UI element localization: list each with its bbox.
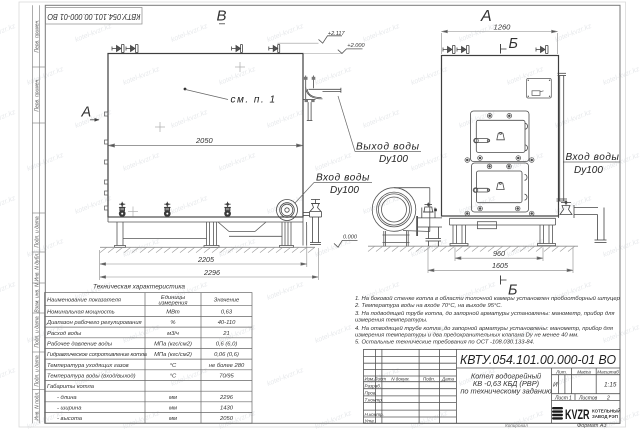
svg-text:40-110: 40-110	[218, 320, 236, 326]
svg-text:измерения: измерения	[158, 301, 187, 307]
svg-text:А: А	[81, 104, 92, 120]
svg-text:Н.контр.: Н.контр.	[365, 412, 384, 417]
svg-text:kotel-kvzr.kz: kotel-kvzr.kz	[170, 109, 209, 130]
svg-text:КВТУ.054.101.00.000-01 ВО: КВТУ.054.101.00.000-01 ВО	[47, 12, 140, 22]
svg-text:kotel-kvzr.kz: kotel-kvzr.kz	[122, 238, 161, 259]
svg-text:5. Остальные технические треб: 5. Остальные технические требования по О…	[355, 340, 535, 346]
svg-text:Температура уходящих газов: Температура уходящих газов	[47, 363, 129, 369]
svg-text:МПа (кгс/см2): МПа (кгс/см2)	[154, 341, 192, 347]
svg-text:Вход воды: Вход воды	[316, 173, 370, 184]
svg-text:0,6 (6,0): 0,6 (6,0)	[216, 341, 238, 347]
svg-text:2296: 2296	[203, 268, 220, 277]
svg-text:Dy100: Dy100	[330, 185, 359, 196]
svg-text:0.000: 0.000	[343, 235, 358, 241]
svg-text:Копировал: Копировал	[505, 423, 528, 428]
svg-text:1430: 1430	[220, 406, 234, 412]
svg-text:0,63: 0,63	[221, 309, 233, 315]
svg-text:Перв. примен.: Перв. примен.	[34, 78, 40, 111]
svg-text:Дата: Дата	[441, 376, 455, 381]
svg-text:kotel-kvzr.kz: kotel-kvzr.kz	[458, 109, 497, 130]
svg-text:Значение: Значение	[214, 298, 240, 304]
svg-text:Разраб.: Разраб.	[365, 383, 382, 388]
svg-text:kotel-kvzr.kz: kotel-kvzr.kz	[218, 238, 257, 259]
svg-text:по техническому заданию: по техническому заданию	[460, 386, 552, 395]
svg-text:не более 280: не более 280	[209, 363, 245, 369]
svg-text:+2.000: +2.000	[347, 43, 365, 49]
svg-text:21: 21	[222, 331, 229, 337]
svg-text:kotel-kvzr.kz: kotel-kvzr.kz	[74, 23, 113, 44]
svg-text:- длина: - длина	[57, 395, 77, 401]
svg-text:kotel-kvzr.kz: kotel-kvzr.kz	[458, 195, 497, 216]
svg-text:0,06 (0,6): 0,06 (0,6)	[214, 352, 239, 358]
svg-text:Масса: Масса	[577, 370, 591, 375]
svg-text:kotel-kvzr.kz: kotel-kvzr.kz	[506, 238, 545, 259]
svg-text:kotel-kvzr.kz: kotel-kvzr.kz	[410, 66, 449, 87]
svg-text:kotel-kvzr.kz: kotel-kvzr.kz	[266, 109, 305, 130]
svg-text:kotel-kvzr.kz: kotel-kvzr.kz	[410, 152, 449, 173]
svg-text:Подп.: Подп.	[423, 376, 435, 381]
svg-text:kotel-kvzr.kz: kotel-kvzr.kz	[314, 66, 353, 87]
svg-text:см. п. 1: см. п. 1	[231, 94, 277, 105]
svg-text:kotel-kvzr.kz: kotel-kvzr.kz	[314, 238, 353, 259]
svg-text:МПа (кгс/см2): МПа (кгс/см2)	[154, 352, 192, 358]
svg-text:kotel-kvzr.kz: kotel-kvzr.kz	[314, 324, 353, 345]
svg-text:4. На отводящей трубе котла ,: 4. На отводящей трубе котла ,до запорной…	[355, 325, 613, 332]
svg-text:Перв. примен.: Перв. примен.	[34, 19, 40, 52]
svg-text:Температура воды (вход/выход): Температура воды (вход/выход)	[47, 374, 136, 380]
svg-text:измерения температуры и два пр: измерения температуры и два предохраните…	[355, 333, 579, 339]
svg-text:kotel-kvzr.kz: kotel-kvzr.kz	[362, 23, 401, 44]
svg-text:- высота: - высота	[57, 416, 83, 422]
svg-text:Взам. инв. N: Взам. инв. N	[34, 283, 40, 313]
svg-text:kotel-kvzr.kz: kotel-kvzr.kz	[0, 109, 17, 130]
svg-text:Лист: Лист	[554, 395, 568, 401]
svg-text:Б: Б	[509, 36, 518, 52]
svg-text:kotel-kvzr.kz: kotel-kvzr.kz	[362, 109, 401, 130]
svg-text:1: 1	[569, 395, 572, 401]
svg-text:Dy100: Dy100	[379, 154, 408, 165]
svg-text:мм: мм	[169, 416, 177, 422]
svg-text:2: 2	[606, 395, 610, 401]
svg-text:Лит.: Лит.	[555, 370, 567, 375]
svg-text:Подп. и дата: Подп. и дата	[34, 216, 40, 248]
svg-text:2050: 2050	[219, 416, 234, 422]
svg-text:Т.контр.: Т.контр.	[365, 397, 384, 402]
svg-text:Листов: Листов	[578, 395, 598, 401]
svg-text:960: 960	[493, 249, 505, 258]
svg-text:- ширина: - ширина	[57, 406, 82, 412]
svg-text:2205: 2205	[197, 255, 215, 264]
svg-text:kotel-kvzr.kz: kotel-kvzr.kz	[122, 152, 161, 173]
svg-text:мм: мм	[169, 395, 177, 401]
svg-text:В: В	[217, 8, 227, 25]
svg-text:Расход воды: Расход воды	[47, 331, 82, 337]
svg-text:Выход воды: Выход воды	[356, 142, 420, 153]
svg-text:kotel-kvzr.kz: kotel-kvzr.kz	[458, 23, 497, 44]
svg-text:kotel-kvzr.kz: kotel-kvzr.kz	[170, 23, 209, 44]
svg-text:Инв. N подл.: Инв. N подл.	[34, 391, 40, 420]
svg-text:kotel-kvzr.kz: kotel-kvzr.kz	[554, 23, 593, 44]
svg-text:N докум.: N докум.	[391, 376, 410, 381]
svg-text:70/95: 70/95	[219, 374, 234, 380]
svg-text:Подп. и дата: Подп. и дата	[34, 355, 40, 387]
svg-text:Рабочее давление воды: Рабочее давление воды	[47, 341, 113, 347]
svg-text:kotel-kvzr.kz: kotel-kvzr.kz	[0, 195, 17, 216]
svg-text:Пров.: Пров.	[365, 391, 377, 396]
svg-text:Номинальная мощность: Номинальная мощность	[47, 309, 115, 315]
svg-text:kotel-kvzr.kz: kotel-kvzr.kz	[122, 66, 161, 87]
svg-text:1260: 1260	[494, 22, 512, 31]
svg-text:°С: °С	[170, 363, 177, 369]
svg-text:+2.117: +2.117	[328, 31, 346, 37]
svg-text:Наименование показателя: Наименование показателя	[47, 298, 121, 304]
svg-text:2296: 2296	[219, 395, 234, 401]
svg-text:%: %	[170, 320, 175, 326]
svg-text:kotel-kvzr.kz: kotel-kvzr.kz	[266, 281, 305, 302]
svg-text:kotel-kvzr.kz: kotel-kvzr.kz	[0, 23, 17, 44]
svg-text:Техническая характеристика: Техническая характеристика	[93, 284, 185, 291]
svg-text:1605: 1605	[492, 261, 509, 270]
svg-text:Гидравлическое сопротивление к: Гидравлическое сопротивление котла	[47, 352, 148, 358]
svg-text:kotel-kvzr.kz: kotel-kvzr.kz	[0, 367, 17, 388]
svg-text:А: А	[480, 8, 492, 25]
svg-text:1:15: 1:15	[604, 382, 617, 389]
svg-text:КВТУ.054.101.00.000-01 ВО: КВТУ.054.101.00.000-01 ВО	[460, 353, 616, 367]
svg-text:kotel-kvzr.kz: kotel-kvzr.kz	[74, 195, 113, 216]
svg-text:2. Температура воды на входе: 2. Температура воды на входе 70°С, на вы…	[354, 303, 502, 309]
svg-text:1. На боковой стенке котла в: 1. На боковой стенке котла в области топ…	[355, 295, 621, 302]
svg-text:м3/ч: м3/ч	[167, 331, 179, 337]
svg-text:kotel-kvzr.kz: kotel-kvzr.kz	[218, 66, 257, 87]
svg-text:kotel-kvzr.kz: kotel-kvzr.kz	[314, 152, 353, 173]
svg-text:Вход воды: Вход воды	[566, 152, 620, 163]
svg-text:Формат А3: Формат А3	[577, 423, 607, 429]
svg-text:2050: 2050	[195, 136, 214, 145]
svg-text:kotel-kvzr.kz: kotel-kvzr.kz	[602, 238, 641, 259]
svg-text:Изм.Лист: Изм.Лист	[365, 376, 387, 381]
svg-text:Габариты котла: Габариты котла	[47, 384, 95, 390]
svg-text:Подп. и дата: Подп. и дата	[34, 316, 40, 348]
svg-text:kotel-kvzr.kz: kotel-kvzr.kz	[602, 66, 641, 87]
svg-text:измерения температуры.: измерения температуры.	[355, 318, 428, 324]
svg-text:Утв.: Утв.	[365, 418, 375, 423]
svg-text:3. На подводящей трубе котла,: 3. На подводящей трубе котла, до запорно…	[355, 310, 615, 317]
svg-text:МВт: МВт	[166, 309, 180, 315]
svg-text:И: И	[553, 382, 558, 389]
svg-text:Dy100: Dy100	[574, 165, 603, 176]
svg-text:Инв. N дубл.: Инв. N дубл.	[34, 253, 40, 282]
svg-text:ЗАВОД РЭП: ЗАВОД РЭП	[592, 414, 618, 419]
svg-text:kotel-kvzr.kz: kotel-kvzr.kz	[266, 23, 305, 44]
svg-text:°С: °С	[170, 374, 177, 380]
svg-text:kotel-kvzr.kz: kotel-kvzr.kz	[506, 66, 545, 87]
svg-text:kotel-kvzr.kz: kotel-kvzr.kz	[170, 195, 209, 216]
svg-text:мм: мм	[169, 406, 177, 412]
svg-text:Диапазон рабочего регулировани: Диапазон рабочего регулирования	[46, 320, 142, 326]
svg-text:kotel-kvzr.kz: kotel-kvzr.kz	[506, 152, 545, 173]
svg-text:kotel-kvzr.kz: kotel-kvzr.kz	[218, 152, 257, 173]
svg-text:Масштаб: Масштаб	[597, 370, 619, 375]
svg-text:КОТЕЛЬНЫЙ: КОТЕЛЬНЫЙ	[592, 409, 621, 414]
svg-text:kotel-kvzr.kz: kotel-kvzr.kz	[266, 195, 305, 216]
svg-text:kotel-kvzr.kz: kotel-kvzr.kz	[0, 281, 17, 302]
svg-text:KVZR: KVZR	[565, 407, 590, 422]
svg-text:kotel-kvzr.kz: kotel-kvzr.kz	[266, 367, 305, 388]
